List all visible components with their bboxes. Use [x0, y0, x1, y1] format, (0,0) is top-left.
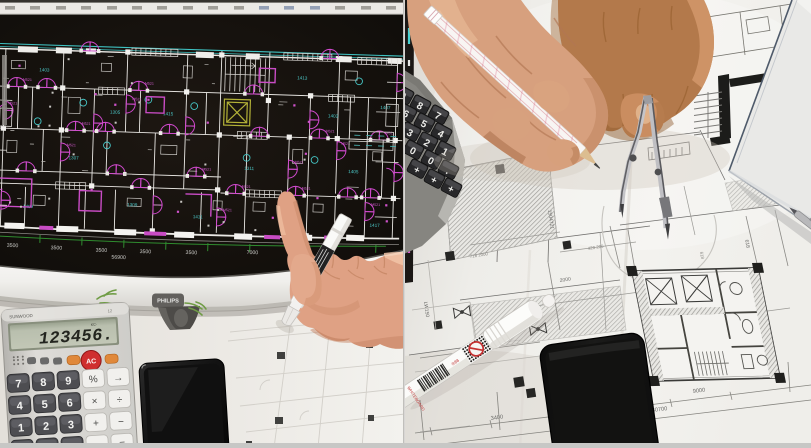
- svg-text:1413: 1413: [297, 75, 308, 80]
- svg-text:AC: AC: [86, 358, 97, 366]
- svg-text:M521: M521: [202, 167, 211, 171]
- svg-text:KC-: KC-: [91, 323, 98, 327]
- svg-text:M521: M521: [371, 203, 380, 207]
- svg-text:→: →: [113, 373, 124, 385]
- svg-text:1311: 1311: [244, 166, 254, 171]
- svg-text:M521: M521: [145, 82, 154, 86]
- svg-text:3500: 3500: [140, 249, 152, 255]
- svg-text:3500: 3500: [185, 250, 197, 256]
- svg-text:×: ×: [91, 396, 98, 407]
- svg-text:M521: M521: [132, 97, 141, 101]
- svg-text:1411: 1411: [193, 214, 203, 219]
- svg-text:6: 6: [66, 397, 73, 409]
- svg-text:M521: M521: [82, 122, 91, 126]
- svg-text:3500: 3500: [7, 243, 19, 249]
- svg-text:1405: 1405: [348, 169, 359, 174]
- svg-text:M521: M521: [294, 160, 303, 164]
- svg-text:8: 8: [40, 377, 47, 389]
- svg-text:3500: 3500: [96, 248, 108, 254]
- svg-text:1305: 1305: [110, 109, 121, 114]
- svg-text:1: 1: [18, 422, 25, 434]
- svg-text:+: +: [93, 418, 100, 429]
- svg-text:2: 2: [43, 421, 50, 433]
- svg-text:−: −: [118, 417, 125, 428]
- svg-text:5: 5: [41, 399, 48, 411]
- svg-text:3500: 3500: [51, 245, 63, 251]
- svg-text:1407: 1407: [380, 105, 391, 110]
- svg-text:M521: M521: [8, 101, 17, 105]
- svg-text:M521: M521: [67, 143, 76, 147]
- svg-text:3: 3: [68, 419, 75, 431]
- svg-text:M521: M521: [223, 208, 232, 212]
- svg-text:PHILIPS: PHILIPS: [157, 299, 179, 305]
- svg-text:1403: 1403: [328, 113, 339, 118]
- svg-text:7: 7: [15, 378, 22, 390]
- svg-text:9: 9: [65, 375, 72, 387]
- svg-text:1307: 1307: [68, 155, 79, 160]
- svg-text:M521: M521: [325, 129, 334, 133]
- svg-text:1403: 1403: [39, 67, 50, 72]
- svg-text:M521: M521: [242, 185, 251, 189]
- svg-text:M521: M521: [302, 187, 311, 191]
- svg-text:7000: 7000: [247, 250, 259, 256]
- svg-text:%: %: [89, 374, 99, 386]
- svg-text:M521: M521: [23, 78, 32, 82]
- svg-text:1309: 1309: [127, 202, 138, 207]
- svg-text:56900: 56900: [111, 255, 126, 261]
- svg-text:1417: 1417: [369, 223, 380, 228]
